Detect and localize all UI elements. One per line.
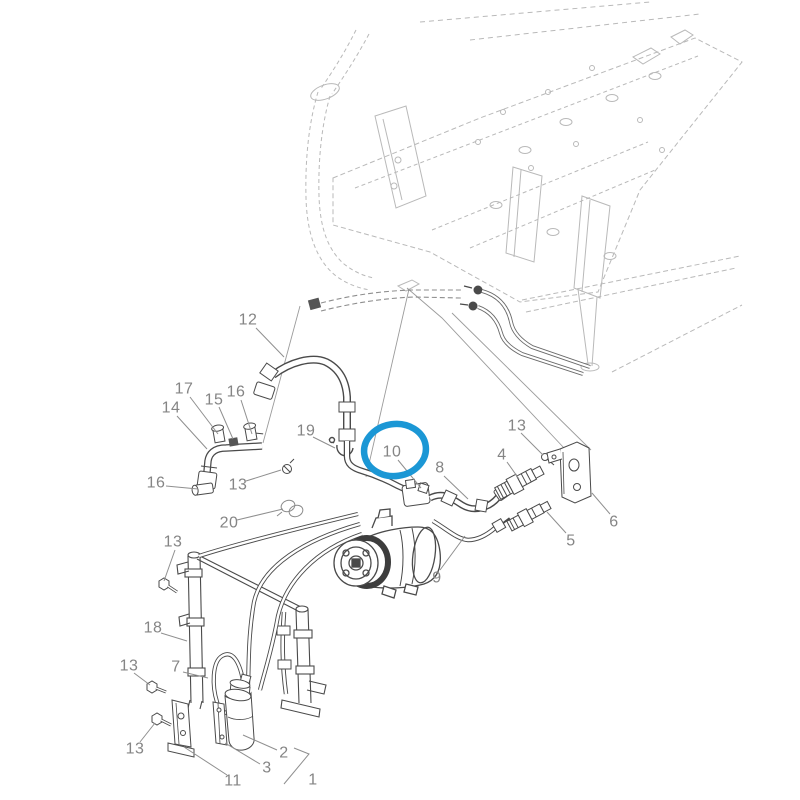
part-label-16b: 16 (147, 475, 166, 492)
hose-bundle-drawing (199, 514, 362, 713)
part-label-13b-leader (246, 470, 281, 481)
part-label-1: 1 (308, 772, 317, 789)
part-label-11: 11 (224, 773, 242, 790)
part-label-4: 4 (497, 447, 506, 464)
fitting-5-drawing (506, 498, 553, 532)
part-label-13a: 13 (508, 418, 527, 435)
hose-with-ferrules-drawing (277, 612, 291, 694)
part-label-5-leader (547, 512, 566, 533)
dashed-hose-drawing (321, 290, 463, 311)
part-label-8: 8 (435, 460, 444, 477)
dashed-hose-fitting (308, 298, 321, 311)
hex-bolt-13-mid-drawing (147, 681, 166, 693)
manifold-10-drawing (402, 479, 431, 506)
clamp-3-drawing (213, 702, 227, 745)
part-label-13a-leader (521, 433, 543, 455)
part-label-10: 10 (383, 444, 402, 461)
compressor-drawing (334, 509, 440, 598)
plug-16-drawing (191, 483, 213, 496)
part-label-6: 6 (609, 514, 618, 531)
part-label-7: 7 (171, 659, 180, 676)
hex-bolt-13-upper-drawing (159, 578, 177, 592)
valve-16-drawing (243, 421, 264, 441)
part-label-3: 3 (262, 760, 271, 777)
part-label-13e-leader (140, 723, 155, 742)
part-label-5: 5 (566, 533, 575, 550)
part-label-9: 9 (432, 570, 441, 587)
part-label-18: 18 (144, 620, 163, 637)
part-label-13d: 13 (120, 658, 139, 675)
part-label-12: 12 (239, 312, 258, 329)
part-label-13c: 13 (164, 534, 183, 551)
part-label-13b: 13 (229, 477, 248, 494)
part-label-15: 15 (205, 392, 224, 409)
bracket-11-drawing (168, 700, 194, 757)
part-label-13d-leader (134, 673, 150, 685)
part-label-2: 2 (279, 745, 288, 762)
parts-diagram-page: Air conditioning compressor, hoses and r… (0, 0, 800, 800)
part-label-20: 20 (220, 515, 239, 532)
fitting-4-drawing (494, 463, 546, 501)
part-label-16a: 16 (227, 384, 246, 401)
part-label-20-leader (237, 509, 283, 520)
nut-15-drawing (228, 437, 238, 446)
part-label-14: 14 (162, 400, 181, 417)
clip-20-drawing (277, 498, 304, 518)
frame-hoses-drawing (460, 286, 590, 375)
part-label-9-leader (440, 536, 465, 570)
chassis-frame-drawing (306, 2, 742, 372)
part-label-12-leader (256, 328, 284, 357)
exploded-parts-diagram: Air conditioning compressor, hoses and r… (0, 0, 800, 800)
part-label-17: 17 (175, 381, 194, 398)
part-label-14-leader (177, 416, 207, 449)
valve-17-drawing (211, 424, 226, 443)
part-label-13e: 13 (126, 741, 145, 758)
part-label-19: 19 (297, 423, 316, 440)
receiver-drier-drawing (224, 674, 254, 750)
part-label-18-leader (161, 633, 187, 641)
screw-13-drawing (283, 459, 295, 474)
part-label-6-leader (592, 493, 610, 514)
bracket-6-drawing (547, 442, 591, 503)
hose-9-drawing (433, 515, 513, 540)
part-label-13c-leader (164, 550, 175, 581)
part-label-11-leader (184, 747, 227, 775)
